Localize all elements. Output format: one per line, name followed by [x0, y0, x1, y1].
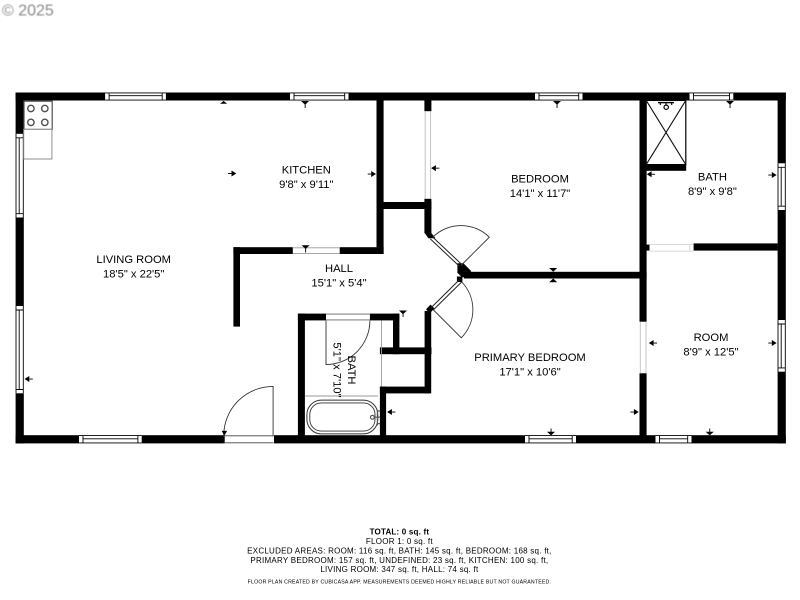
- svg-text:5'1" x 7'10": 5'1" x 7'10": [330, 342, 342, 397]
- svg-text:PRIMARY BEDROOM: 157 sq. ft, U: PRIMARY BEDROOM: 157 sq. ft, UNDEFINED: …: [250, 556, 548, 565]
- svg-text:18'5" x 22'5": 18'5" x 22'5": [103, 269, 164, 281]
- svg-text:HALL: HALL: [325, 263, 353, 275]
- svg-text:ROOM: ROOM: [694, 332, 729, 344]
- svg-text:EXCLUDED AREAS: ROOM: 116 sq.: EXCLUDED AREAS: ROOM: 116 sq. ft, BATH: …: [247, 546, 551, 555]
- svg-text:9'8" x 9'11": 9'8" x 9'11": [279, 179, 333, 191]
- svg-text:LIVING ROOM: LIVING ROOM: [96, 254, 171, 266]
- svg-text:TOTAL: 0 sq. ft: TOTAL: 0 sq. ft: [370, 528, 430, 537]
- svg-text:BATH: BATH: [698, 171, 727, 183]
- svg-text:8'9" x 9'8": 8'9" x 9'8": [688, 186, 737, 198]
- svg-text:KITCHEN: KITCHEN: [282, 165, 331, 177]
- svg-text:8'9" x 12'5": 8'9" x 12'5": [683, 346, 738, 358]
- svg-text:BEDROOM: BEDROOM: [511, 174, 569, 186]
- svg-text:LIVING ROOM: 347 sq. ft, HALL:: LIVING ROOM: 347 sq. ft, HALL: 74 sq. ft: [320, 565, 479, 574]
- svg-text:17'1" x 10'6": 17'1" x 10'6": [499, 366, 560, 378]
- svg-text:14'1" x 11'7": 14'1" x 11'7": [510, 188, 571, 200]
- svg-text:FLOOR PLAN CREATED BY CUBICASA: FLOOR PLAN CREATED BY CUBICASA APP. MEAS…: [248, 579, 551, 585]
- svg-text:15'1" x 5'4": 15'1" x 5'4": [311, 278, 366, 290]
- svg-text:© 2025: © 2025: [2, 3, 54, 20]
- svg-text:FLOOR 1: 0 sq. ft: FLOOR 1: 0 sq. ft: [366, 537, 433, 546]
- svg-text:PRIMARY BEDROOM: PRIMARY BEDROOM: [474, 352, 585, 364]
- svg-text:BATH: BATH: [345, 355, 357, 384]
